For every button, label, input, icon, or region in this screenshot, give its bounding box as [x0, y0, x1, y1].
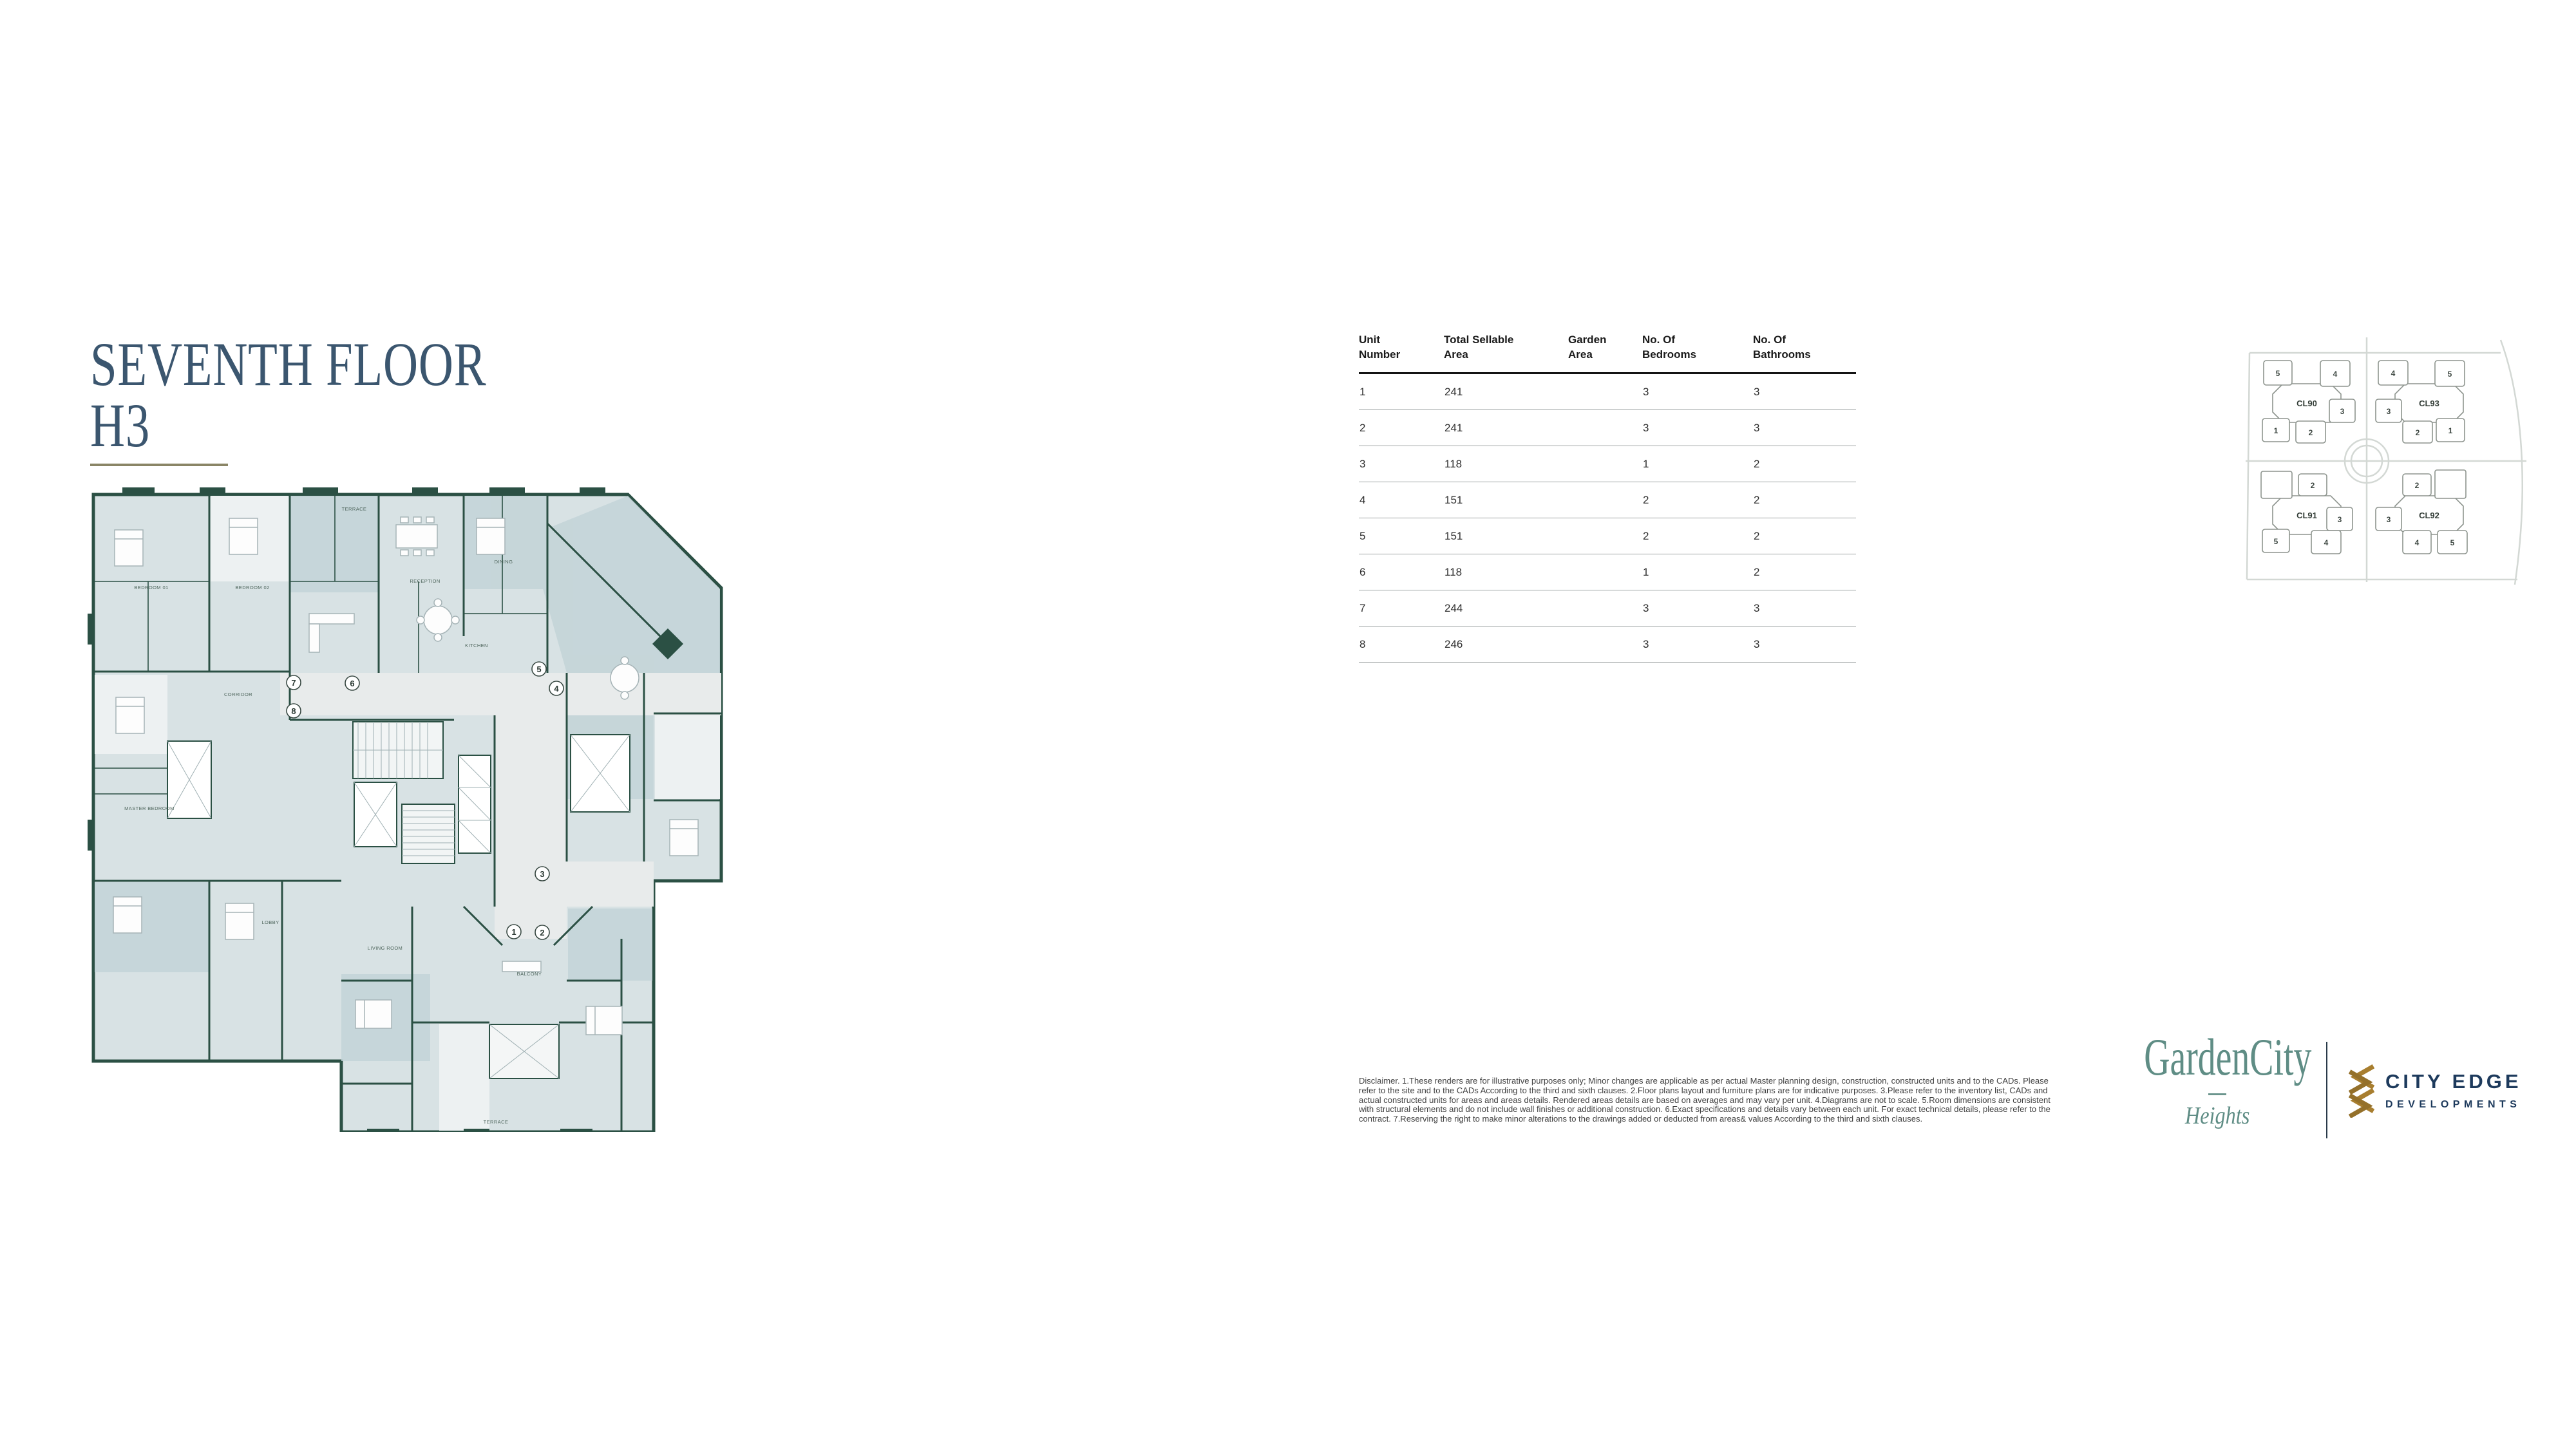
- svg-text:DINING: DINING: [495, 559, 513, 565]
- cluster-cl93: CL93 4 5 3 2 1: [2376, 361, 2465, 443]
- svg-text:5: 5: [536, 664, 541, 674]
- unit-marker-2: 2: [535, 925, 549, 939]
- table-row: 311812: [1359, 446, 1856, 482]
- svg-text:3: 3: [2340, 407, 2345, 416]
- col-header-bathrooms: No. Of Bathrooms: [1753, 332, 1856, 373]
- highlighted-building-cl92-1: 1: [2435, 470, 2466, 498]
- page-title: SEVENTH FLOOR H3: [90, 334, 598, 456]
- svg-text:7: 7: [291, 678, 296, 688]
- svg-text:5: 5: [2450, 538, 2455, 547]
- site-location-map: CL90 5 4 3 1 2 CL93 4 5 3 2 1 CL91 1 2 3…: [2244, 322, 2528, 592]
- svg-text:LIVING ROOM: LIVING ROOM: [368, 945, 402, 951]
- unit-marker-5: 5: [532, 662, 546, 676]
- highlighted-building-cl91-1: 1: [2261, 471, 2292, 498]
- table-row: 415122: [1359, 482, 1856, 518]
- svg-text:CL91: CL91: [2297, 511, 2317, 520]
- svg-text:3: 3: [2387, 515, 2391, 524]
- unit-marker-6: 6: [345, 676, 359, 690]
- svg-text:5: 5: [2274, 537, 2278, 546]
- table-row: 824633: [1359, 626, 1856, 663]
- svg-text:3: 3: [2338, 515, 2342, 524]
- gardencity-wordmark: GardenCity: [2144, 1030, 2311, 1084]
- svg-text:KITCHEN: KITCHEN: [465, 643, 488, 648]
- svg-text:1: 1: [2448, 480, 2453, 489]
- svg-text:3: 3: [540, 869, 544, 879]
- floor-plan-drawing: TERRACE BEDROOM 01 BEDROOM 02 MASTER BED…: [77, 485, 734, 1132]
- svg-text:2: 2: [540, 928, 544, 937]
- col-header-garden-area: Garden Area: [1568, 332, 1642, 373]
- svg-text:CL92: CL92: [2419, 511, 2439, 520]
- brochure-page: SEVENTH FLOOR H3: [0, 0, 2576, 1450]
- svg-text:4: 4: [2391, 369, 2396, 378]
- col-header-bedrooms: No. Of Bedrooms: [1642, 332, 1753, 373]
- unit-marker-1: 1: [507, 925, 521, 939]
- svg-text:1: 1: [2275, 481, 2279, 490]
- svg-text:3: 3: [2387, 407, 2391, 416]
- svg-text:BEDROOM 01: BEDROOM 01: [134, 585, 168, 590]
- svg-text:1: 1: [2274, 426, 2278, 435]
- logo-divider: [2326, 1042, 2327, 1138]
- table-row: 724433: [1359, 590, 1856, 626]
- svg-text:4: 4: [2324, 538, 2329, 547]
- svg-text:2: 2: [2309, 428, 2313, 437]
- table-header-row: Unit Number Total Sellable Area Garden A…: [1359, 332, 1856, 373]
- svg-text:CL93: CL93: [2419, 399, 2439, 408]
- table-row: 224133: [1359, 410, 1856, 446]
- title-underline: [90, 464, 228, 466]
- cityedge-developments-label: DEVELOPMENTS: [2385, 1099, 2522, 1111]
- svg-text:1: 1: [511, 927, 516, 937]
- svg-text:RECEPTION: RECEPTION: [410, 578, 440, 584]
- svg-text:8: 8: [291, 706, 296, 716]
- svg-text:4: 4: [554, 684, 559, 693]
- cityedge-wordmark: CITY EDGE DEVELOPMENTS: [2385, 1070, 2522, 1111]
- col-header-sellable-area: Total Sellable Area: [1444, 332, 1568, 373]
- cluster-cl92: CL92 2 1 3 4 5: [2376, 470, 2467, 554]
- svg-text:2: 2: [2415, 481, 2420, 490]
- unit-data-table: Unit Number Total Sellable Area Garden A…: [1359, 332, 1856, 663]
- gardencity-heights-label: Heights: [2185, 1102, 2249, 1130]
- table-row: 124133: [1359, 373, 1856, 410]
- unit-marker-3: 3: [535, 867, 549, 881]
- svg-text:BEDROOM 02: BEDROOM 02: [235, 585, 269, 590]
- gardencity-logo: GardenCity Heights: [2105, 1030, 2330, 1130]
- svg-text:4: 4: [2333, 370, 2338, 379]
- cluster-cl91: CL91 1 2 3 5 4: [2261, 471, 2353, 554]
- gardencity-dash: [2208, 1093, 2226, 1095]
- col-header-unit-number: Unit Number: [1359, 332, 1444, 373]
- svg-text:CL90: CL90: [2297, 399, 2317, 408]
- svg-text:TERRACE: TERRACE: [484, 1119, 509, 1125]
- svg-text:BALCONY: BALCONY: [517, 971, 542, 977]
- table-row: 611812: [1359, 554, 1856, 590]
- svg-text:1: 1: [2448, 426, 2453, 435]
- cityedge-knot-icon: [2344, 1062, 2378, 1118]
- cityedge-logo: CITY EDGE DEVELOPMENTS: [2344, 1062, 2522, 1118]
- svg-text:TERRACE: TERRACE: [342, 506, 367, 512]
- svg-text:5: 5: [2448, 370, 2452, 379]
- svg-text:MASTER BEDROOM: MASTER BEDROOM: [124, 805, 175, 811]
- unit-marker-4: 4: [549, 681, 563, 695]
- svg-text:CORRIDOR: CORRIDOR: [224, 692, 252, 697]
- svg-text:5: 5: [2276, 369, 2280, 378]
- cluster-cl90: CL90 5 4 3 1 2: [2262, 361, 2355, 443]
- svg-text:4: 4: [2415, 538, 2420, 547]
- disclaimer-text: Disclaimer. 1.These renders are for illu…: [1359, 1077, 2064, 1124]
- table-row: 515122: [1359, 518, 1856, 554]
- unit-marker-7: 7: [287, 675, 301, 690]
- svg-text:6: 6: [350, 679, 354, 688]
- unit-marker-8: 8: [287, 704, 301, 718]
- svg-text:LOBBY: LOBBY: [261, 919, 279, 925]
- svg-text:2: 2: [2311, 481, 2315, 490]
- floor-title-line1: SEVENTH FLOOR: [90, 334, 486, 395]
- cityedge-name: CITY EDGE: [2385, 1070, 2522, 1093]
- floor-title-line2: H3: [90, 395, 486, 456]
- svg-text:2: 2: [2416, 428, 2420, 437]
